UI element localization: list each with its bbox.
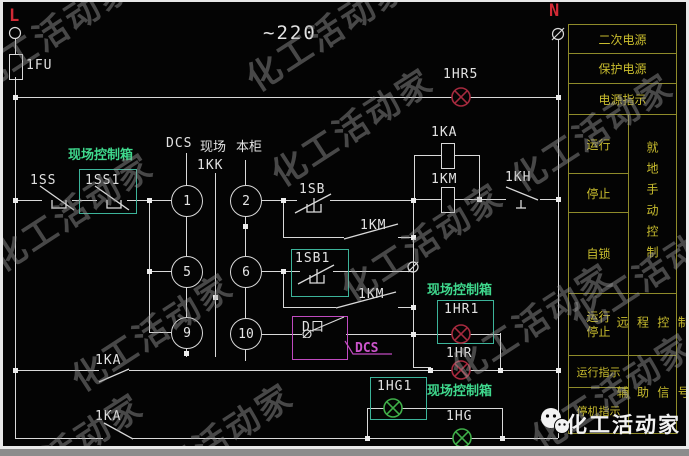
legend-text: 运行停止 <box>585 310 613 340</box>
selector-contact-1: 1 <box>171 185 203 217</box>
fuse-label: 1FU <box>26 58 52 73</box>
junction-dot <box>13 368 18 373</box>
field-box-title: 现场控制箱 <box>427 380 492 399</box>
wire-segment <box>283 307 336 308</box>
wire-segment <box>186 215 187 256</box>
wire-segment <box>413 199 441 200</box>
no-button-contact-sb1 <box>296 255 338 287</box>
frame-edge <box>0 0 689 2</box>
field-box-title: 现场控制箱 <box>427 279 492 298</box>
lamp-hr5 <box>449 85 473 109</box>
junction-dot <box>411 332 416 337</box>
contact-number: 2 <box>242 194 250 209</box>
neutral-n-label: N <box>549 1 560 21</box>
junction-dot <box>556 197 561 202</box>
wire-segment <box>500 333 501 371</box>
legend-text: 就地手动控制 <box>644 141 661 267</box>
contact-number: 1 <box>183 194 191 209</box>
selector-position-field: 现场 <box>200 136 226 155</box>
nc-button-contact-ss1 <box>93 184 133 212</box>
watermark-text: 化工活动家 <box>120 369 302 456</box>
junction-dot <box>13 198 18 203</box>
wire-segment <box>479 155 480 199</box>
wire-segment <box>15 438 103 439</box>
wire-segment <box>15 370 99 371</box>
wire-segment <box>15 77 16 438</box>
junction-dot <box>243 224 248 229</box>
wire-segment <box>186 286 187 317</box>
legend-col-remote-control: 远程控制 <box>628 293 677 356</box>
wire-segment <box>129 370 452 371</box>
no-contact-ka1 <box>97 366 133 384</box>
lamp-hg1 <box>381 396 405 420</box>
wire-segment <box>245 286 246 318</box>
legend-col-local-manual: 就地手动控制 <box>628 114 677 294</box>
selector-position-dcs: DCS <box>166 136 192 151</box>
lamp-hr <box>449 358 473 382</box>
wire-segment <box>283 237 344 238</box>
km-coil-label: 1KM <box>431 172 457 187</box>
wire-segment <box>283 271 284 307</box>
selector-contact-6: 6 <box>230 256 262 288</box>
wire-segment <box>149 200 150 332</box>
junction-dot <box>500 436 505 441</box>
legend-row-run: 运行 <box>568 114 629 174</box>
junction-dot <box>13 95 18 100</box>
wire-segment <box>133 438 453 439</box>
legend-row-selfhold: 自锁 <box>568 212 629 294</box>
selector-contact-10: 10 <box>230 318 262 350</box>
selector-position-cabinet: 本柜 <box>236 136 262 155</box>
wire-segment <box>283 200 284 237</box>
run-lamp-field-label: 1HR1 <box>444 302 479 317</box>
contact-number: 6 <box>242 265 250 280</box>
legend-row-power-indication: 电源指示 <box>568 83 677 115</box>
wire-segment <box>413 200 414 367</box>
lamp-hr1 <box>449 322 473 346</box>
wire-segment <box>454 155 479 156</box>
fuse-symbol <box>9 54 23 80</box>
brand-name: 化工活动家 <box>566 409 681 439</box>
watermark-text: 化工活动家 <box>0 379 152 456</box>
wire-segment <box>502 408 503 438</box>
wire-segment <box>149 271 172 272</box>
contact-number: 9 <box>183 326 191 341</box>
frame-edge-gray <box>0 449 689 456</box>
junction-dot <box>281 269 286 274</box>
ka-coil-label: 1KA <box>431 125 457 140</box>
wire-segment <box>470 370 558 371</box>
selector-contact-9: 9 <box>171 317 203 349</box>
power-lamp-label: 1HR5 <box>443 67 478 82</box>
selector-contact-2: 2 <box>230 185 262 217</box>
no-contact-km2 <box>334 289 400 310</box>
schematic-canvas: L N ~220 1FU <box>0 0 689 456</box>
nc-button-contact-ss <box>38 184 78 212</box>
junction-dot <box>477 197 482 202</box>
selector-shaft-line <box>215 173 216 357</box>
wire-segment <box>149 332 172 333</box>
field-box-title: 现场控制箱 <box>68 144 133 163</box>
no-button-contact-sb <box>293 184 335 216</box>
no-contact-km1 <box>342 221 402 241</box>
selector-label: 1KK <box>197 158 223 173</box>
junction-dot <box>184 351 189 356</box>
stop-lamp-label: 1HG <box>446 409 472 424</box>
wire-segment <box>186 153 187 186</box>
legend-text: 远程控制 <box>612 310 689 339</box>
wire-segment <box>414 155 441 156</box>
wire-segment <box>260 200 297 201</box>
junction-dot <box>411 235 416 240</box>
legend-row-stop: 停止 <box>568 173 629 213</box>
junction-dot <box>498 368 503 373</box>
junction-dot <box>365 436 370 441</box>
frame-edge <box>0 0 3 456</box>
nc-contact-kh <box>504 183 544 213</box>
watermark-text: 化工活动家 <box>0 0 142 101</box>
junction-dot <box>556 368 561 373</box>
no-contact-ka2 <box>101 421 137 440</box>
legend-row-secondary-power: 二次电源 <box>568 24 677 54</box>
junction-dot <box>281 198 286 203</box>
wire-segment <box>367 408 368 438</box>
junction-dot <box>213 295 218 300</box>
watermark-text: 化工活动家 <box>235 0 417 101</box>
contact-number: 10 <box>238 327 254 342</box>
terminal-circle-n <box>551 27 565 41</box>
junction-dot <box>147 269 152 274</box>
wire-segment <box>330 200 413 201</box>
legend-row-protect-power: 保护电源 <box>568 53 677 84</box>
km-coil-symbol <box>441 187 455 213</box>
phase-l-label: L <box>9 6 20 26</box>
contact-number: 5 <box>183 265 191 280</box>
junction-dot <box>411 198 416 203</box>
dcs-tag-label: DCS <box>355 341 378 356</box>
junction-dot <box>556 95 561 100</box>
wire-segment <box>15 39 16 55</box>
ka-coil-symbol <box>441 143 455 169</box>
wire-segment <box>245 215 246 256</box>
junction-dot <box>428 368 433 373</box>
junction-dot <box>411 305 416 310</box>
selector-contact-5: 5 <box>171 256 203 288</box>
legend-text: 辅助信号 <box>612 379 689 410</box>
junction-dot <box>147 198 152 203</box>
wire-segment <box>15 97 558 98</box>
wire-segment <box>245 160 246 185</box>
terminal-circle-l <box>8 26 22 40</box>
voltage-label: ~220 <box>263 22 317 44</box>
stop-lamp-field-label: 1HG1 <box>377 379 412 394</box>
wire-segment <box>414 155 415 199</box>
dcs-output-contact <box>300 312 350 338</box>
